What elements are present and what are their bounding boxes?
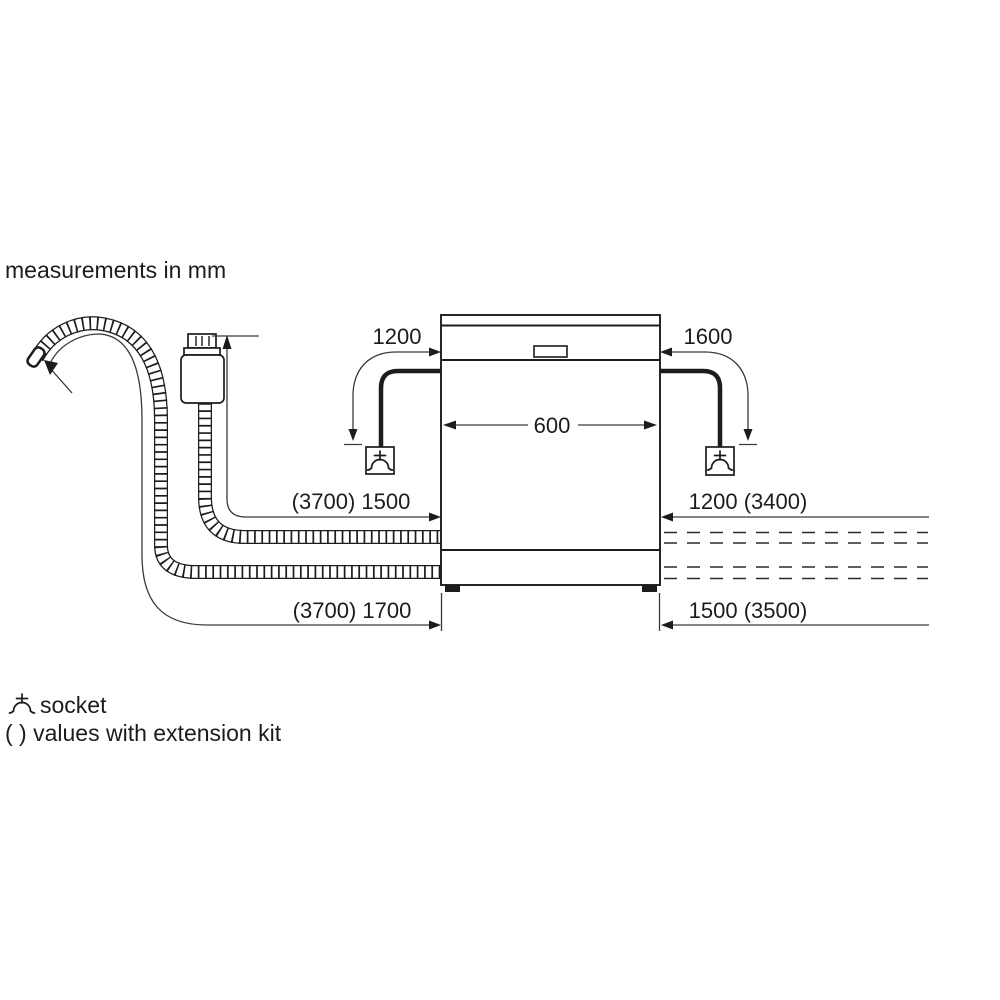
dim-label-right-upper: 1200 (3400) <box>689 489 808 514</box>
drain-hose-end-cap <box>26 346 46 369</box>
power-cord-right <box>660 371 720 447</box>
diagram-canvas: measurements in mm <box>0 0 1000 1000</box>
dim-right-upper: 1200 (3400) <box>661 489 929 522</box>
socket-box-right <box>706 447 734 475</box>
valve-body <box>181 355 224 403</box>
dim-label-supply-hose: (3700) 1500 <box>292 489 411 514</box>
dishwasher-handle <box>534 346 567 357</box>
legend: socket ( ) values with extension kit <box>5 692 282 746</box>
valve-flange <box>184 348 220 355</box>
dim-right-lower: 1500 (3500) <box>661 598 929 630</box>
dim-supply-hose: (3700) 1500 <box>212 335 441 522</box>
power-cord-left <box>381 371 441 447</box>
aquastop-valve <box>181 334 224 403</box>
legend-extension-note: ( ) values with extension kit <box>5 720 282 746</box>
diagram-title: measurements in mm <box>5 257 226 283</box>
socket-icon <box>10 694 35 713</box>
dim-label-drain-hose: (3700) 1700 <box>293 598 412 623</box>
dim-label-width: 600 <box>534 413 571 438</box>
legend-socket-label: socket <box>40 692 107 718</box>
dishwasher <box>441 315 660 631</box>
dim-label-right-lower: 1500 (3500) <box>689 598 808 623</box>
socket-box-left <box>366 447 394 474</box>
dim-label-cord-right: 1600 <box>684 324 733 349</box>
installation-diagram: measurements in mm <box>0 0 1000 1000</box>
dim-cord-left: 1200 <box>344 324 441 445</box>
dishwasher-foot-right <box>642 585 657 592</box>
dim-cord-right: 1600 <box>660 324 757 445</box>
dishwasher-foot-left <box>445 585 460 592</box>
dim-label-cord-left: 1200 <box>373 324 422 349</box>
hose-continuation-dashes <box>664 533 928 579</box>
